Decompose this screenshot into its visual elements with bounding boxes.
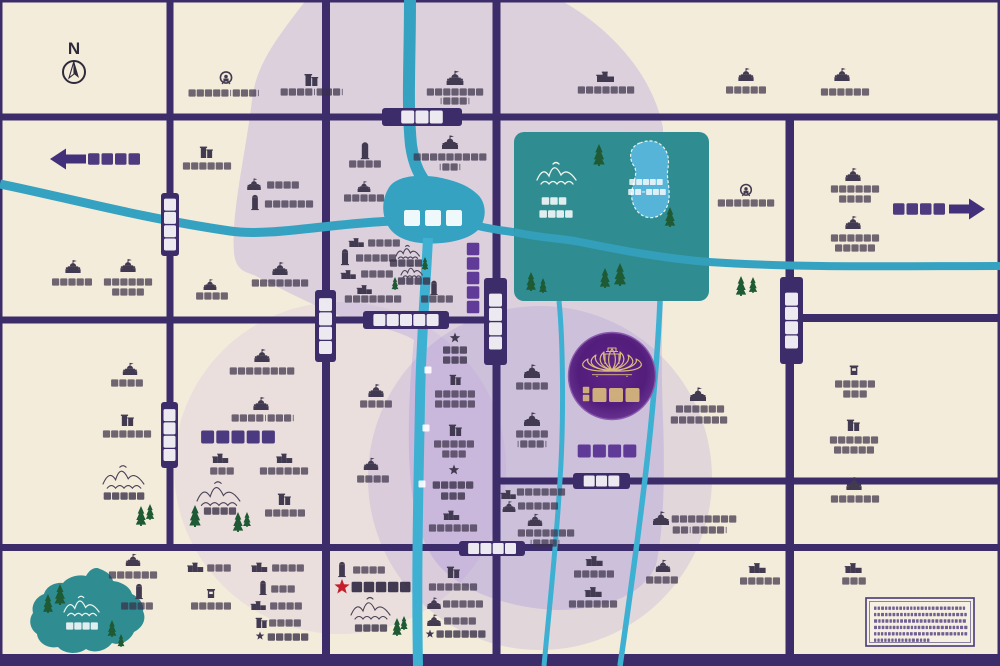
svg-text:N: N bbox=[68, 39, 80, 58]
